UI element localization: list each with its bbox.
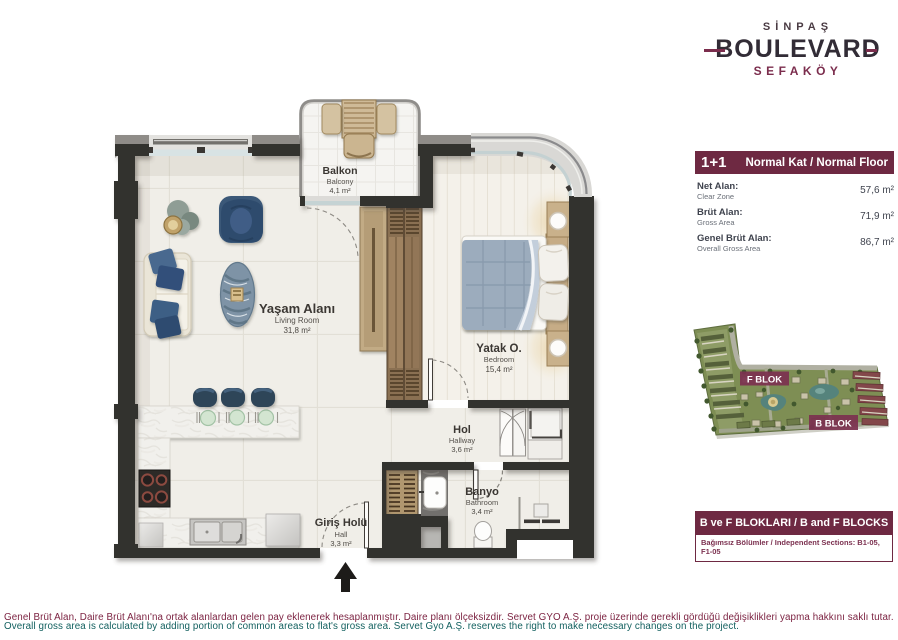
svg-text:Yaşam Alanı: Yaşam Alanı (259, 301, 335, 316)
svg-text:Bathroom: Bathroom (466, 498, 499, 507)
svg-text:B BLOK: B BLOK (815, 419, 852, 430)
svg-text:Giriş Holü: Giriş Holü (315, 517, 368, 529)
svg-text:Hallway: Hallway (449, 436, 476, 445)
svg-text:3,4 m²: 3,4 m² (471, 507, 493, 516)
svg-text:3,3 m²: 3,3 m² (330, 539, 352, 548)
svg-text:15,4 m²: 15,4 m² (485, 365, 512, 374)
svg-text:Banyo: Banyo (465, 486, 499, 498)
svg-text:4,1 m²: 4,1 m² (329, 186, 351, 195)
svg-text:Hall: Hall (335, 530, 348, 539)
svg-text:Living Room: Living Room (275, 316, 320, 325)
svg-text:F BLOK: F BLOK (747, 375, 782, 386)
svg-text:Balkon: Balkon (322, 165, 357, 177)
svg-text:Bedroom: Bedroom (484, 355, 514, 364)
svg-text:Yatak O.: Yatak O. (476, 343, 521, 355)
svg-text:31,8 m²: 31,8 m² (283, 326, 310, 335)
svg-text:Hol: Hol (453, 424, 471, 436)
svg-text:Balcony: Balcony (327, 177, 354, 186)
svg-text:3,6 m²: 3,6 m² (451, 445, 473, 454)
